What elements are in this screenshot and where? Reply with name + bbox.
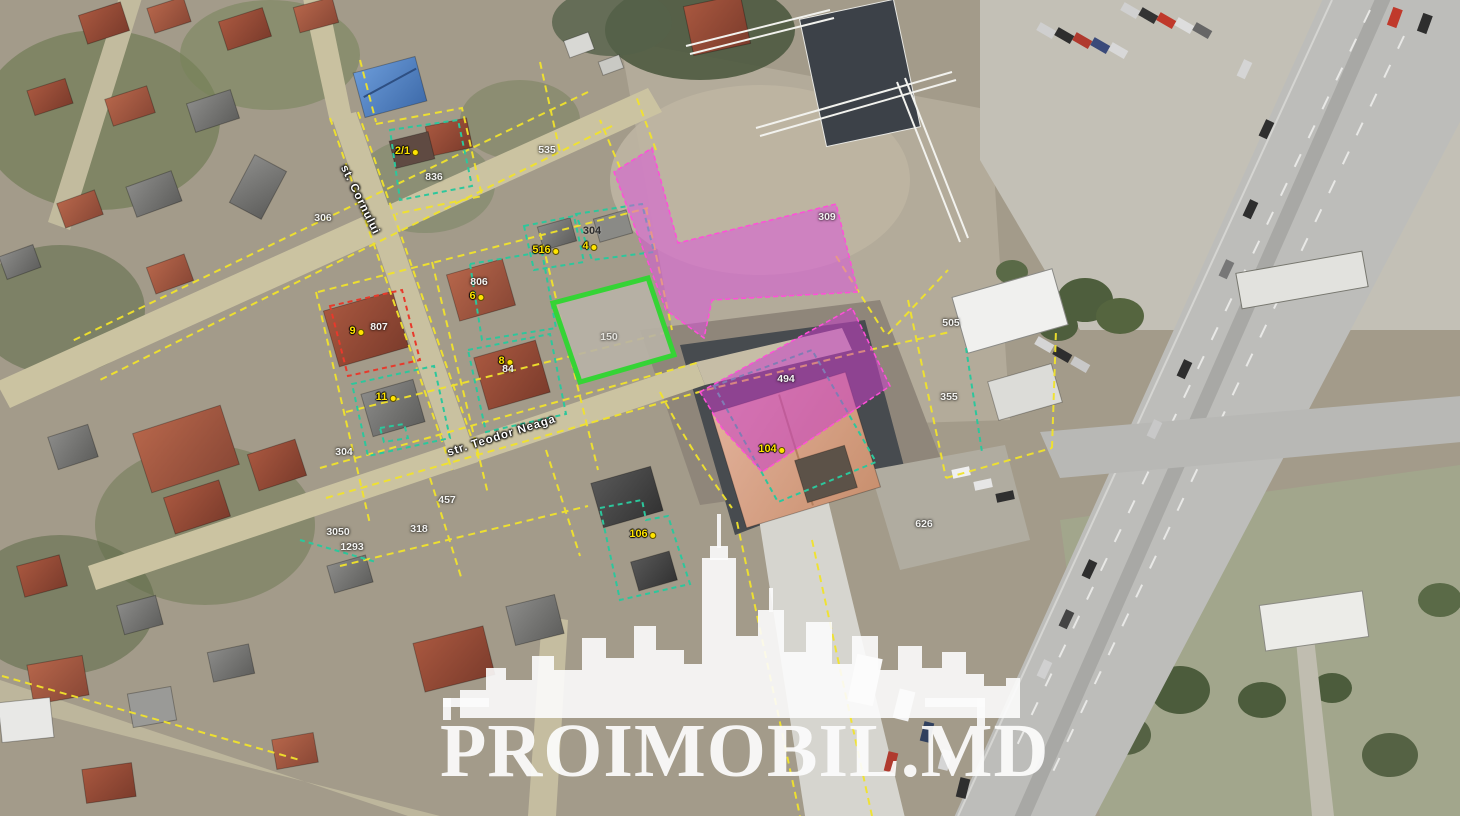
aerial-imagery: [0, 0, 1460, 816]
satellite-map[interactable]: 2/1 516 4 9 6 8 11 104 106 836 306 535 3…: [0, 0, 1460, 816]
